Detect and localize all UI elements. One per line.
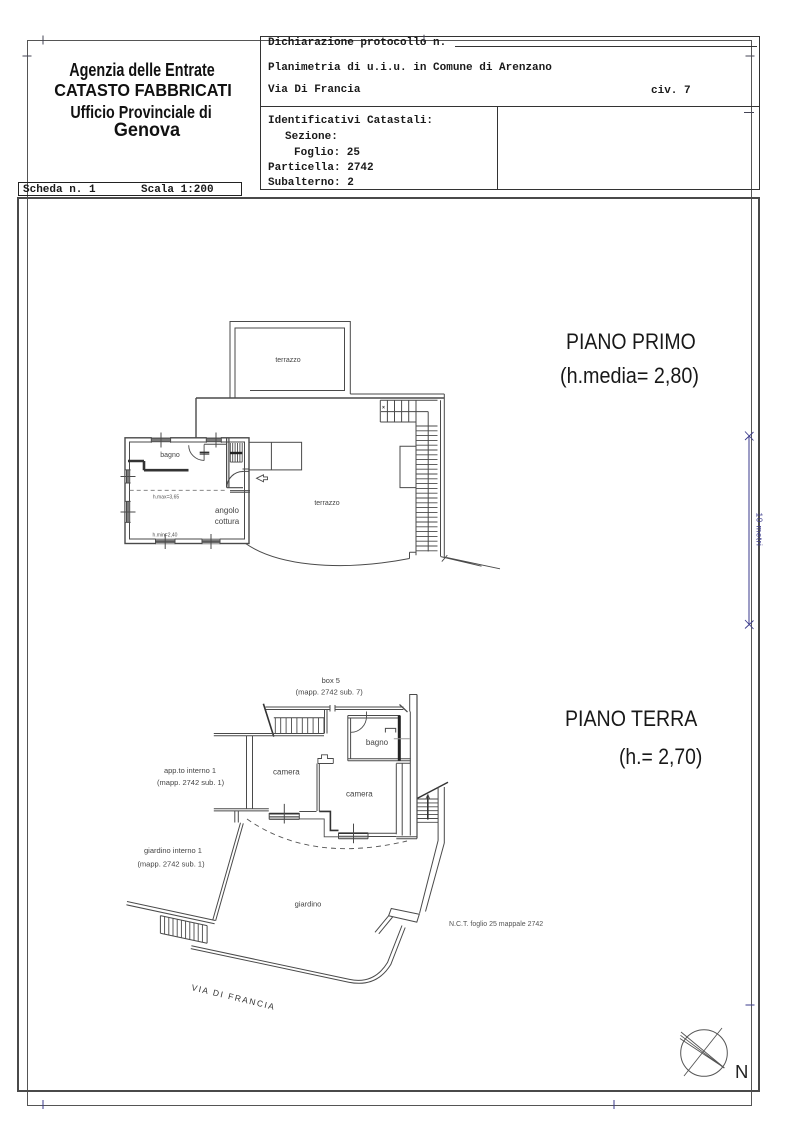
svg-text:N.C.T. foglio 25 mappale 2742: N.C.T. foglio 25 mappale 2742 bbox=[449, 921, 543, 928]
svg-text:bagno: bagno bbox=[366, 738, 389, 747]
svg-text:10 metri: 10 metri bbox=[755, 513, 764, 547]
svg-text:N: N bbox=[735, 1061, 748, 1082]
svg-text:VIA DI FRANCIA: VIA DI FRANCIA bbox=[191, 982, 277, 1012]
svg-text:terrazzo: terrazzo bbox=[275, 357, 300, 364]
svg-text:angolo: angolo bbox=[215, 506, 240, 515]
svg-text:app.to interno 1: app.to interno 1 bbox=[164, 766, 216, 775]
svg-text:giardino interno 1: giardino interno 1 bbox=[144, 846, 202, 855]
svg-text:h.min=2,40: h.min=2,40 bbox=[153, 533, 178, 539]
svg-text:camera: camera bbox=[346, 790, 373, 799]
svg-text:h.max=3,65: h.max=3,65 bbox=[153, 495, 179, 501]
svg-text:(mapp. 2742 sub. 7): (mapp. 2742 sub. 7) bbox=[296, 688, 364, 697]
svg-text:box 5: box 5 bbox=[322, 676, 340, 685]
svg-text:(mapp. 2742 sub. 1): (mapp. 2742 sub. 1) bbox=[137, 860, 205, 869]
svg-text:giardino: giardino bbox=[295, 900, 322, 909]
svg-text:terrazzo: terrazzo bbox=[314, 500, 339, 507]
svg-text:(mapp. 2742 sub. 1): (mapp. 2742 sub. 1) bbox=[157, 778, 225, 787]
svg-text:bagno: bagno bbox=[160, 452, 180, 459]
svg-text:camera: camera bbox=[273, 768, 300, 777]
svg-text:cottura: cottura bbox=[215, 517, 240, 526]
